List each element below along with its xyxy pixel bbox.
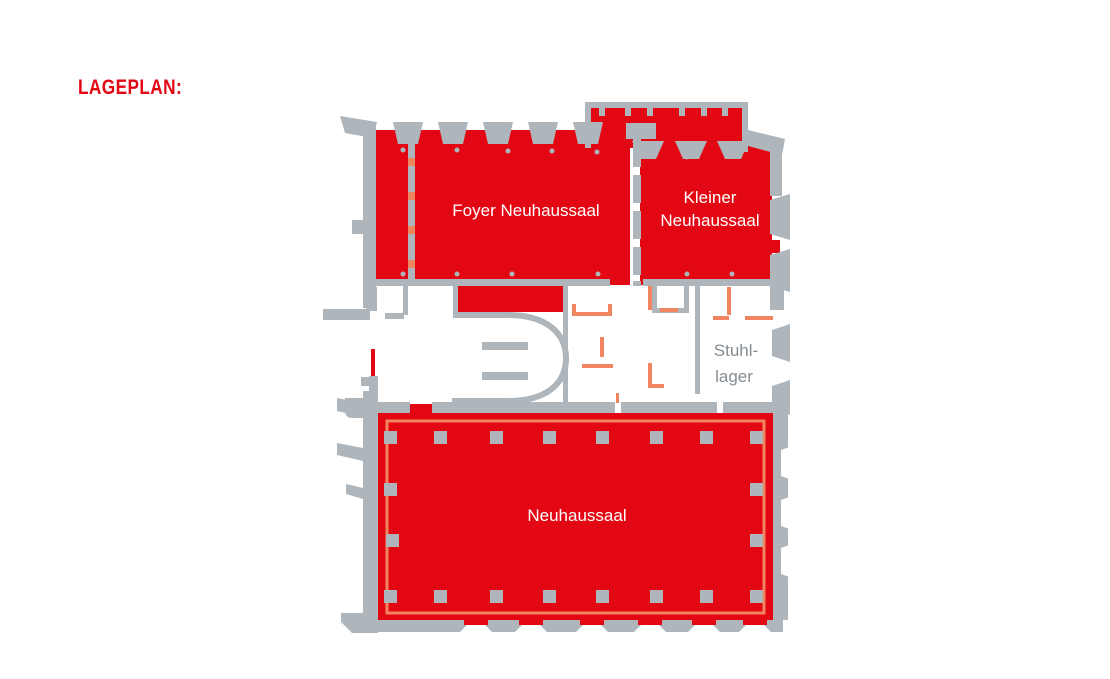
page: LAGEPLAN: (0, 0, 1110, 679)
label-stuhllager-line1: Stuhl- (714, 341, 758, 360)
foyer-annex-area (458, 285, 565, 312)
label-kleiner-line1: Kleiner (684, 188, 737, 207)
label-foyer-neuhaussaal: Foyer Neuhaussaal (452, 201, 599, 220)
highlighted-areas (371, 108, 780, 620)
label-neuhaussaal: Neuhaussaal (527, 506, 626, 525)
label-stuhllager-line2: lager (715, 367, 753, 386)
entrance-door-line (371, 349, 375, 378)
floorplan-diagram: Foyer Neuhaussaal Kleiner Neuhaussaal St… (0, 0, 1110, 679)
label-kleiner-line2: Neuhaussaal (660, 211, 759, 230)
